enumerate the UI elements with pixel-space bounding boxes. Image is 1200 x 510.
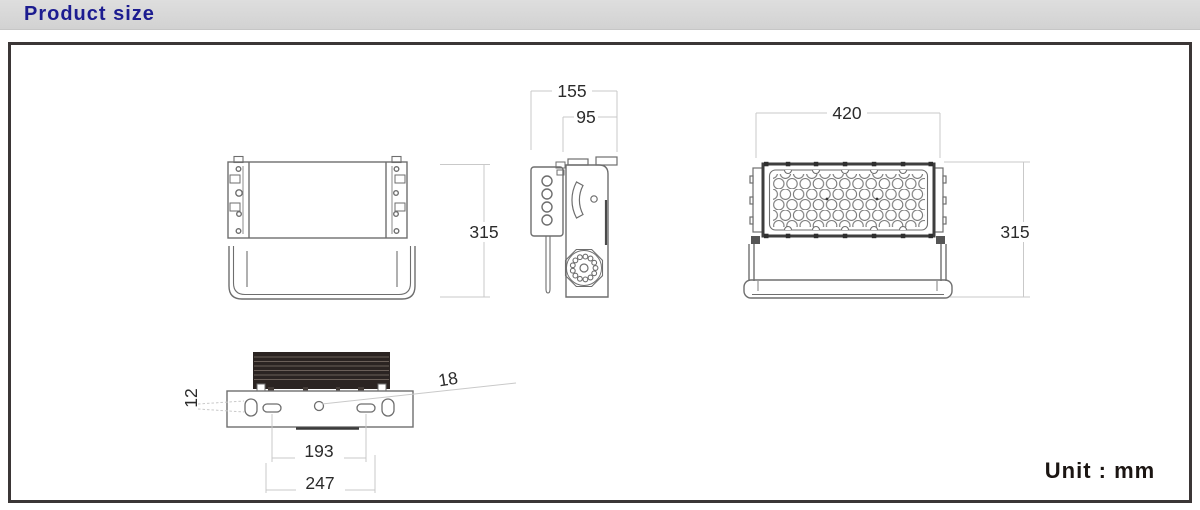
side-view	[531, 157, 617, 297]
dim-outer-spacing: 247	[305, 473, 334, 493]
back-view-bracket	[229, 246, 415, 299]
led-lens-array	[773, 174, 925, 227]
front-view-bracket	[744, 244, 952, 298]
dim-side-body-depth: 95	[576, 107, 595, 127]
dim-front-height: 315	[1000, 222, 1029, 242]
side-view-body	[566, 157, 617, 297]
dim-center-hole: 18	[437, 368, 459, 391]
dim-slot-spacing: 193	[304, 441, 333, 461]
bottom-view-mounting-bar	[227, 391, 413, 429]
bottom-view	[227, 352, 413, 429]
dim-oval-width: 12	[181, 388, 201, 407]
front-view-led-panel	[763, 162, 934, 238]
back-view-housing	[228, 157, 407, 239]
dim-back-height: 315	[469, 222, 498, 242]
page: Product size	[0, 0, 1200, 510]
bottom-view-heatsink	[253, 352, 390, 391]
dim-front-width: 420	[832, 103, 861, 123]
dim-side-overall-depth: 155	[557, 81, 586, 101]
back-view	[228, 157, 415, 300]
side-view-mounting-plate	[531, 162, 565, 293]
technical-drawing: 315	[0, 0, 1200, 510]
unit-label: Unit : mm	[1020, 458, 1180, 484]
front-view	[744, 162, 952, 298]
